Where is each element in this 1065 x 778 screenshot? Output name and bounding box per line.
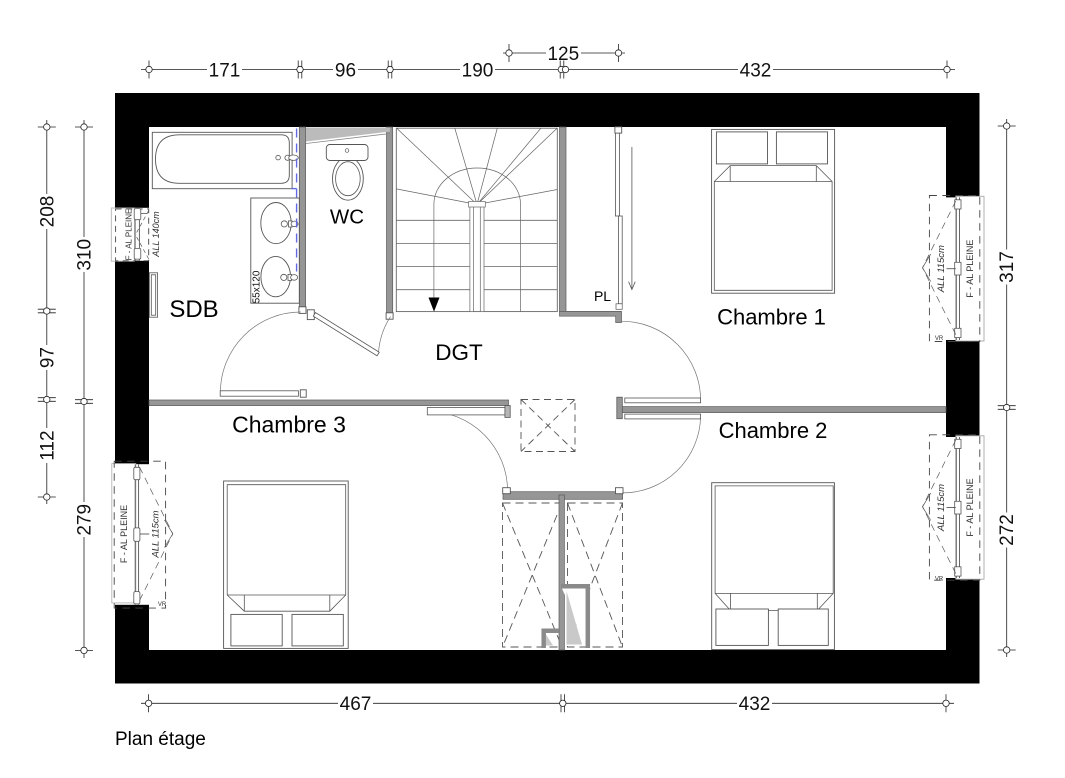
svg-text:97: 97 (37, 347, 58, 368)
svg-text:VR: VR (158, 602, 167, 608)
svg-text:Chambre 3: Chambre 3 (232, 412, 346, 438)
svg-text:432: 432 (739, 694, 771, 715)
svg-text:PL: PL (594, 288, 611, 304)
svg-text:467: 467 (340, 694, 372, 715)
svg-text:125: 125 (547, 44, 579, 65)
svg-text:Plan étage: Plan étage (115, 729, 206, 750)
svg-text:317: 317 (997, 251, 1018, 283)
svg-text:VR: VR (935, 336, 944, 342)
svg-text:F - AL PLEINE: F - AL PLEINE (119, 505, 129, 563)
svg-text:Chambre 1: Chambre 1 (717, 305, 826, 330)
svg-text:208: 208 (37, 196, 58, 228)
svg-text:F - AL PLEINE: F - AL PLEINE (965, 240, 975, 298)
svg-text:F - AL PLEINE: F - AL PLEINE (124, 209, 133, 261)
svg-text:279: 279 (75, 504, 96, 536)
svg-text:190: 190 (462, 60, 494, 81)
svg-text:ALL 140cm: ALL 140cm (151, 211, 161, 258)
svg-text:310: 310 (75, 239, 96, 271)
svg-text:DGT: DGT (435, 340, 483, 365)
svg-text:ALL 115cm: ALL 115cm (936, 245, 947, 293)
svg-text:171: 171 (209, 60, 241, 81)
svg-text:ALL 115cm: ALL 115cm (936, 484, 947, 532)
svg-text:ALL 115cm: ALL 115cm (151, 510, 162, 558)
svg-text:272: 272 (997, 514, 1018, 546)
svg-text:55x120: 55x120 (252, 270, 263, 303)
svg-text:SDB: SDB (169, 296, 218, 323)
svg-text:96: 96 (335, 60, 356, 81)
svg-text:VR: VR (935, 577, 944, 583)
svg-text:F - AL PLEINE: F - AL PLEINE (965, 478, 975, 536)
svg-text:112: 112 (37, 430, 58, 460)
svg-text:Chambre 2: Chambre 2 (719, 418, 828, 443)
svg-text:432: 432 (740, 60, 772, 81)
svg-text:WC: WC (330, 206, 364, 229)
